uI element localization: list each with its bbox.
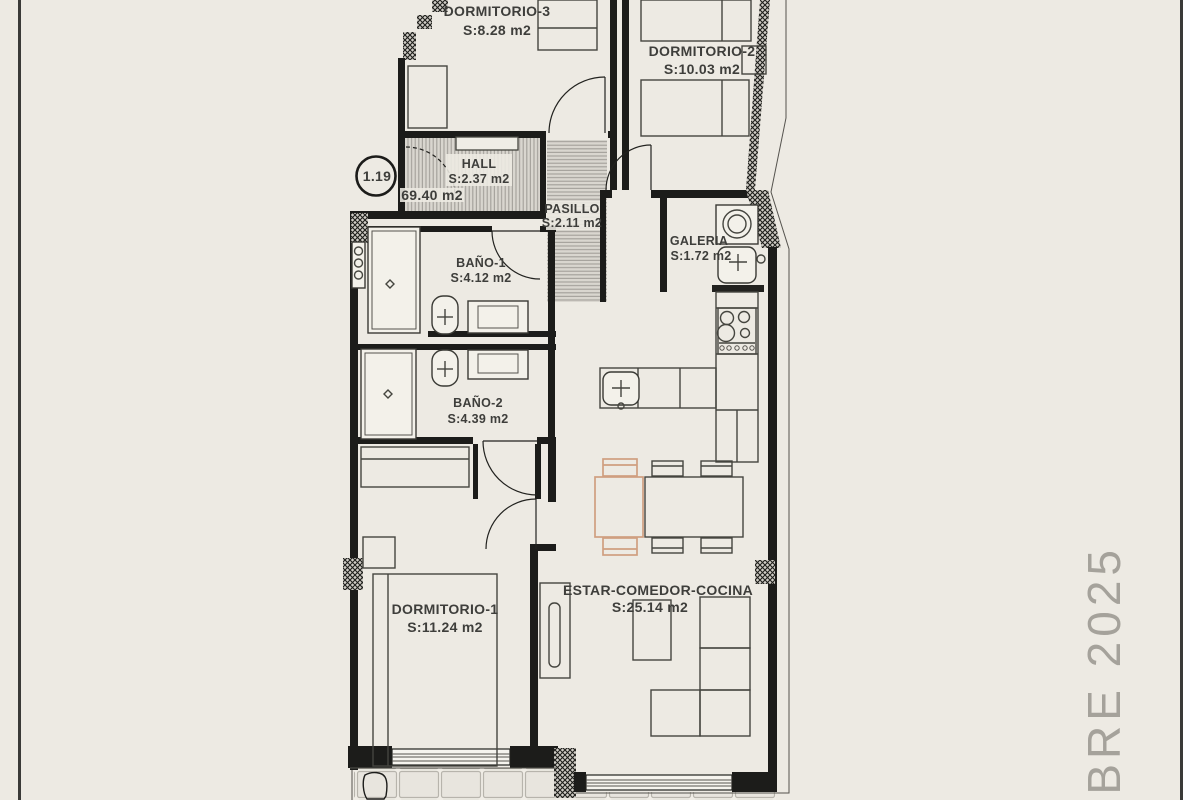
label-dormitorio-2-name: DORMITORIO-2 <box>649 43 756 59</box>
floorplan-svg: MBRE 2025 <box>0 0 1200 800</box>
window-dormitorio-1 <box>392 749 510 765</box>
sheet-border-right <box>1180 0 1183 800</box>
label-bano-1-area: S:4.12 m2 <box>450 271 511 285</box>
label-dormitorio-3-area: S:8.28 m2 <box>463 22 531 38</box>
label-galeria-name: GALERIA <box>670 234 728 248</box>
label-dormitorio-2-area: S:10.03 m2 <box>664 61 740 77</box>
sheet-margin <box>1183 0 1200 800</box>
sheet-border-left <box>18 0 21 800</box>
date-watermark: MBRE 2025 <box>1078 545 1130 800</box>
label-bano-1-name: BAÑO-1 <box>456 255 506 270</box>
label-estar-area: S:25.14 m2 <box>612 599 688 615</box>
label-hall-area: S:2.37 m2 <box>448 172 509 186</box>
shower-2 <box>361 349 416 439</box>
drawing-sheet: MBRE 2025 <box>0 0 1200 800</box>
label-hall-name: HALL <box>462 157 497 171</box>
window-estar <box>586 775 732 790</box>
shower-1 <box>368 227 420 333</box>
label-galeria-area: S:1.72 m2 <box>670 249 731 263</box>
label-bano-2-area: S:4.39 m2 <box>447 412 508 426</box>
label-pasillo-area: S:2.11 m2 <box>542 216 602 230</box>
furniture-hall <box>456 137 518 150</box>
unit-number: 1.19 <box>363 168 391 184</box>
label-dormitorio-3-name: DORMITORIO-3 <box>444 3 551 19</box>
unit-number-bubble: 1.19 <box>357 157 396 196</box>
kitchen-sink <box>603 372 639 409</box>
label-total-area: 69.40 m2 <box>401 187 463 203</box>
label-dormitorio-1-name: DORMITORIO-1 <box>392 601 499 617</box>
label-dormitorio-1-area: S:11.24 m2 <box>407 619 482 635</box>
label-bano-2-name: BAÑO-2 <box>453 395 503 410</box>
label-pasillo-name: PASILLO <box>544 202 599 216</box>
label-estar-name: ESTAR-COMEDOR-COCINA <box>563 582 753 598</box>
